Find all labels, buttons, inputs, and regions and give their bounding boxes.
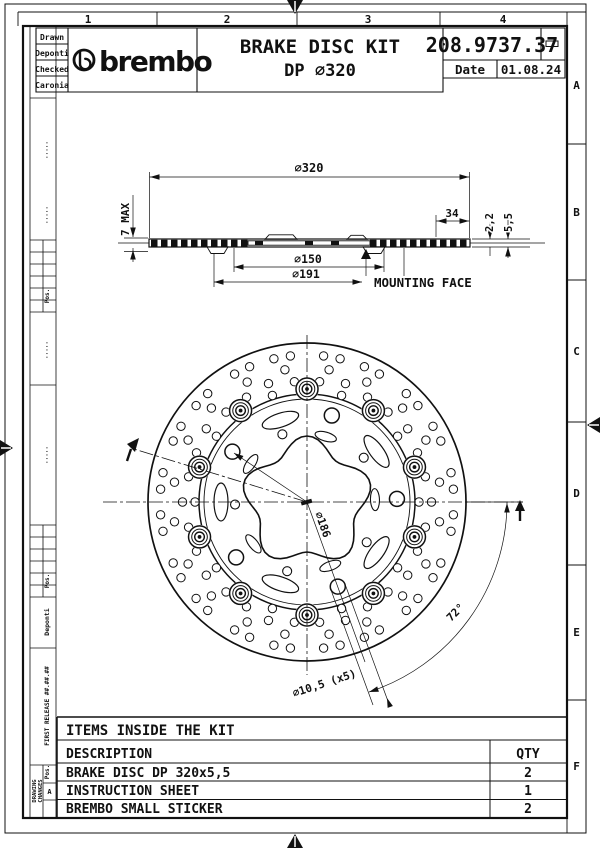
- kit-table-title: ITEMS INSIDE THE KIT: [66, 723, 235, 739]
- rev-letter: A: [47, 788, 52, 796]
- section-block: [331, 241, 339, 245]
- dim-outer-diameter: ⌀320: [295, 161, 324, 175]
- kit-table-col-qty: QTY: [516, 747, 540, 762]
- brand-wordmark: brembo: [99, 45, 213, 78]
- grid-row-e: E: [573, 626, 580, 639]
- drawn-value: Deponti: [35, 48, 69, 58]
- grid-col-2: 2: [224, 13, 231, 26]
- grid-row-d: D: [573, 487, 580, 500]
- kit-row-description: BRAKE DISC DP 320x5,5: [66, 766, 230, 781]
- date-label: Date: [455, 62, 486, 77]
- part-number: 208.9737.37: [426, 33, 558, 57]
- rev-dots: ·····: [44, 141, 51, 159]
- rev-pos-label: Pos.: [44, 289, 51, 303]
- drawing-sheet: 1 2 3 4 A B C D E F Drawn Deponti Checke…: [0, 0, 600, 848]
- dim-max-height: 7 MAX: [119, 203, 132, 236]
- center-mark: [301, 499, 313, 506]
- mounting-face-arrow: [361, 249, 371, 259]
- dim-thickness-total: 5,5: [503, 213, 515, 232]
- dim-thickness-inner: 2,2: [484, 213, 496, 232]
- dim-band-width: 34: [445, 207, 459, 220]
- kit-row-qty: 2: [524, 766, 532, 781]
- grid-col-4: 4: [500, 13, 507, 26]
- dim-holes: ⌀10,5 (x5): [291, 667, 358, 700]
- grid-col-3: 3: [365, 13, 372, 26]
- rev-dots: ·····: [44, 341, 51, 359]
- sheet-frame: [0, 0, 600, 848]
- rotation-arrow-icon: [127, 438, 139, 461]
- checked-label: Checked: [35, 65, 69, 74]
- section-block: [255, 241, 263, 245]
- drawn-label: Drawn: [40, 33, 64, 42]
- centering-marks: [0, 0, 600, 848]
- grid-col-1: 1: [85, 13, 92, 26]
- rev-dots: ·····: [44, 206, 51, 224]
- rev-dots: ·····: [44, 446, 51, 464]
- kit-row-description: BREMBO SMALL STICKER: [66, 802, 223, 817]
- sheet-title-line1: BRAKE DISC KIT: [240, 36, 400, 58]
- rev-drawing-changes-2: CHANGES: [38, 779, 44, 802]
- date-value: 01.08.24: [501, 62, 561, 77]
- dim-d150: ⌀150: [294, 252, 322, 266]
- checked-value: Caronia: [35, 80, 69, 90]
- position-arrow-icon: [515, 500, 525, 521]
- section-block: [305, 241, 313, 245]
- grid-row-c: C: [573, 345, 580, 358]
- dim-d191: ⌀191: [292, 267, 320, 281]
- grid-row-b: B: [573, 206, 580, 219]
- grid-band-lines: [18, 12, 586, 833]
- rev-first-release: FIRST RELEASE ##.##.##: [44, 666, 51, 746]
- dim-angle: 72°: [444, 601, 467, 624]
- section-boss-left: [207, 247, 228, 254]
- brembo-logo-icon: [74, 50, 94, 70]
- grid-row-a: A: [573, 79, 580, 92]
- revision-strip-lines: [30, 26, 56, 818]
- kit-table-col-description: DESCRIPTION: [66, 747, 152, 762]
- kit-row-qty: 2: [524, 802, 532, 817]
- rev-pos-label: Pos.: [44, 574, 51, 588]
- kit-row-description: INSTRUCTION SHEET: [66, 784, 199, 799]
- rev-author: Deponti: [43, 608, 51, 635]
- kit-row-qty: 1: [524, 784, 532, 799]
- mounting-face-label: MOUNTING FACE: [374, 275, 472, 290]
- rev-pos-label: Pos.: [44, 765, 51, 779]
- grid-row-f: F: [573, 760, 580, 773]
- section-dim-lines: [118, 172, 545, 287]
- labels: 1 2 3 4 A B C D E F Drawn Deponti Checke…: [32, 13, 580, 817]
- sheet-title-line2: DP ⌀320: [284, 61, 356, 81]
